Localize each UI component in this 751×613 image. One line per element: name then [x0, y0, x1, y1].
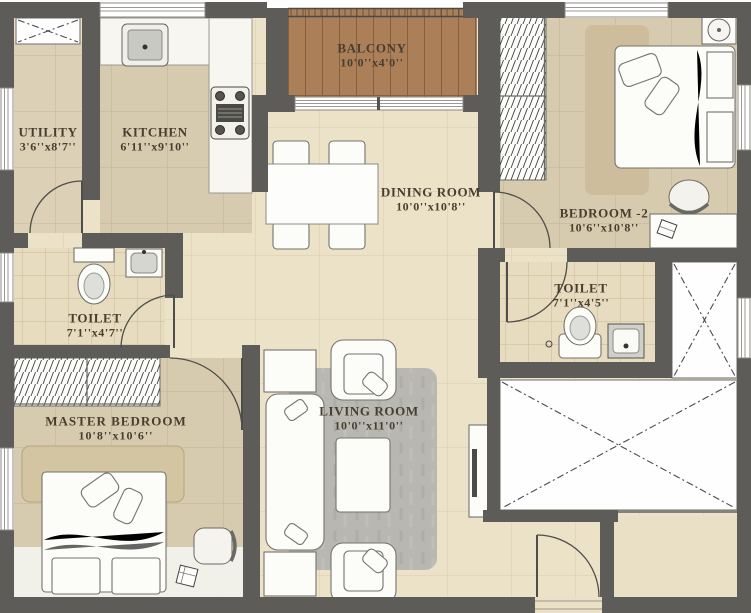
balcony-sliding-door: [295, 97, 463, 110]
shaft-right: [672, 262, 737, 378]
kitchen-window: [100, 3, 205, 17]
room-name: MASTER BEDROOM: [45, 413, 186, 428]
room-label-master-bedroom: MASTER BEDROOM 10'8''x10'6'': [45, 413, 186, 442]
room-size: 7'1''x4'5'': [553, 296, 610, 310]
void-large: [500, 380, 737, 513]
room-label-balcony: BALCONY 10'0''x4'0'': [337, 40, 406, 69]
coffee-table: [336, 438, 390, 512]
room-size: 10'0''x4'0'': [337, 56, 406, 70]
dining-table: [266, 164, 378, 224]
room-name: UTILITY: [18, 124, 77, 139]
utility-duct: [16, 18, 80, 44]
side-table: [264, 552, 316, 596]
bedroom2-wardrobe: [500, 12, 546, 180]
wc-tank: [74, 248, 114, 262]
balcony-railing: [288, 8, 477, 17]
floorplan-svg: [0, 0, 751, 613]
room-name: DINING ROOM: [381, 184, 481, 199]
foyer-floor: [614, 516, 737, 597]
room-label-bedroom-2: BEDROOM -2 10'6''x10'8'': [560, 205, 649, 234]
floor-plan: UTILITY 3'6''x8'7'' KITCHEN 6'11''x9'10'…: [0, 0, 751, 613]
room-name: TOILET: [553, 280, 610, 295]
toilet1-window: [1, 253, 13, 302]
room-label-dining-room: DINING ROOM 10'0''x10'8'': [381, 184, 481, 213]
master-wardrobe: [14, 358, 160, 406]
armchair-bottom: [331, 543, 396, 603]
room-name: LIVING ROOM: [319, 403, 418, 418]
room-size: 6'11''x9'10'': [120, 140, 189, 154]
room-size: 10'8''x10'6'': [45, 429, 186, 443]
room-size: 10'0''x10'8'': [381, 200, 481, 214]
kitchen-sink: [122, 24, 168, 66]
master-bed: [22, 446, 184, 594]
room-label-kitchen: KITCHEN 6'11''x9'10'': [120, 124, 189, 153]
room-size: 10'0''x11'0'': [319, 419, 418, 433]
dining-chair: [329, 222, 365, 249]
room-name: BEDROOM -2: [560, 205, 649, 220]
room-label-toilet-left: TOILET 7'1''x4'7'': [67, 310, 124, 339]
shaft-window: [738, 298, 750, 358]
ottoman: [112, 558, 160, 594]
room-name: TOILET: [67, 310, 124, 325]
master-laptop: [176, 565, 198, 587]
room-name: BALCONY: [337, 40, 406, 55]
master-window: [1, 448, 13, 530]
sofa: [264, 350, 324, 596]
room-size: 10'6''x10'8'': [560, 221, 649, 235]
room-name: KITCHEN: [120, 124, 189, 139]
armchair-top: [331, 340, 396, 400]
bedroom2-right-window: [738, 85, 750, 150]
bedroom2-top-window: [565, 3, 668, 17]
ottoman: [52, 558, 100, 594]
room-size: 7'1''x4'7'': [67, 326, 124, 340]
tv-unit: [469, 425, 490, 517]
side-table: [264, 350, 316, 392]
room-label-toilet-right: TOILET 7'1''x4'5'': [553, 280, 610, 309]
room-label-living-room: LIVING ROOM 10'0''x11'0'': [319, 403, 418, 432]
master-chair: [194, 528, 235, 564]
dining-chair: [273, 222, 309, 249]
room-size: 3'6''x8'7'': [18, 140, 77, 154]
utility-window: [1, 88, 13, 170]
room-label-utility: UTILITY 3'6''x8'7'': [18, 124, 77, 153]
stove: [211, 87, 249, 139]
